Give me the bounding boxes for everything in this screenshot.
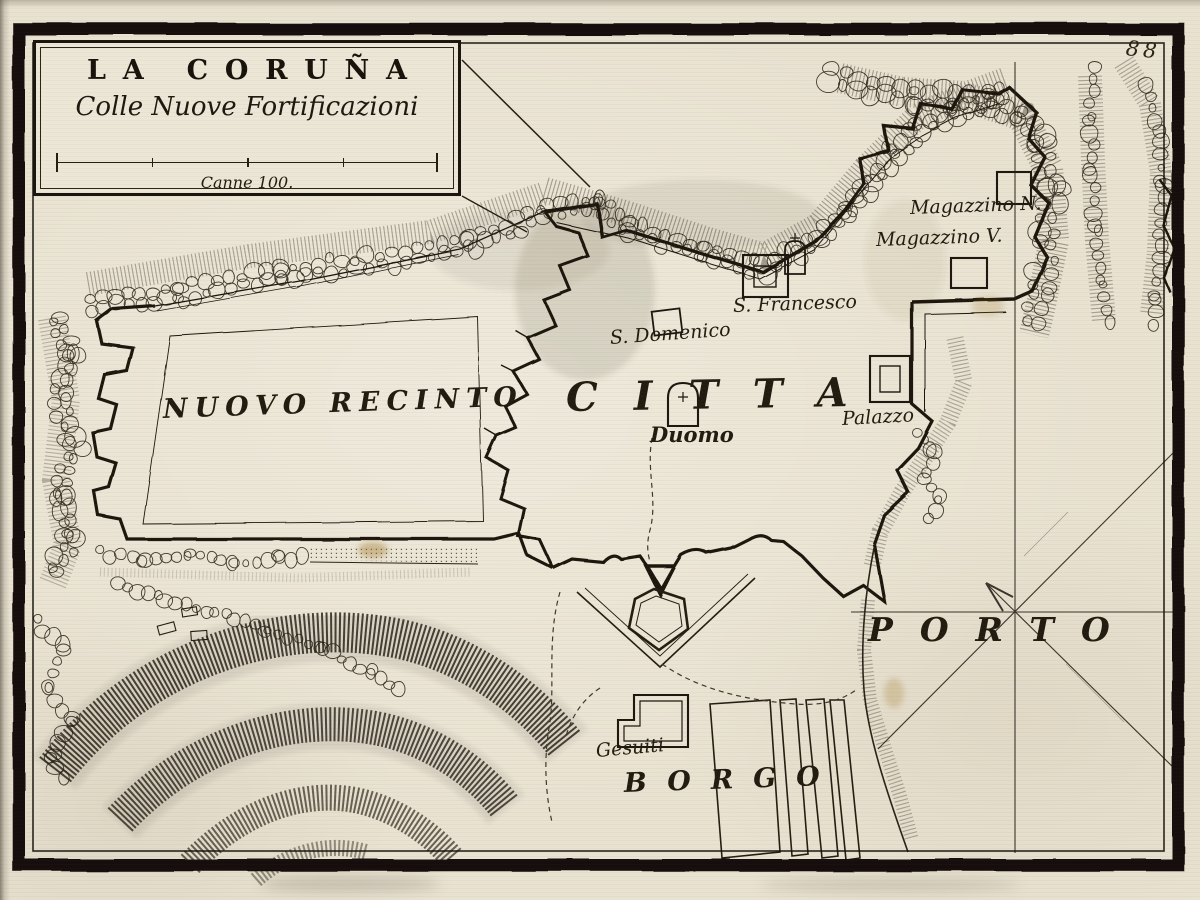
scale-tick — [343, 158, 345, 167]
beach-strip — [310, 546, 478, 564]
building-magazzino-v — [951, 258, 987, 288]
compass-ne-sw-line — [878, 447, 1179, 749]
label-porto: PORTO — [868, 610, 1137, 649]
glacis-hill — [55, 632, 566, 880]
scale-bar — [56, 151, 438, 175]
scale-tick — [247, 158, 249, 167]
porto-shoreline — [863, 548, 908, 852]
map-subtitle: Colle Nuove Fortificazioni — [36, 92, 458, 122]
photo-edge-shadow — [0, 0, 10, 900]
engraved-map-page: LA CORUÑA Colle Nuove Fortificazioni Can… — [0, 0, 1200, 900]
ravelin-inner — [636, 596, 682, 642]
map-title: LA CORUÑA — [36, 55, 458, 86]
recinto-outer-wall — [93, 306, 553, 568]
label-magazzino-v: Magazzino V. — [876, 225, 1003, 251]
label-citta: CITTA — [566, 368, 884, 421]
photo-edge-shadow — [0, 0, 1200, 8]
title-cartouche: LA CORUÑA Colle Nuove Fortificazioni Can… — [33, 40, 461, 196]
counterguard-outer — [577, 578, 755, 667]
label-s-francesco: S. Francesco — [733, 291, 858, 317]
scale-tick — [56, 153, 58, 172]
compass-rose — [851, 62, 1179, 853]
label-magazzino-n: Magazzino N. — [910, 192, 1042, 219]
ravelin-outer — [629, 589, 688, 650]
label-palazzo: Palazzo — [841, 404, 914, 430]
buildings — [618, 172, 1031, 747]
scale-label: Canne 100. — [36, 173, 458, 192]
scattered-stones — [157, 607, 207, 641]
citta-south-front — [553, 535, 884, 601]
scale-tick — [436, 153, 438, 172]
citta-hornwork-inner — [925, 312, 1006, 412]
label-duomo: Duomo — [650, 422, 734, 447]
scale-tick — [152, 158, 154, 167]
outworks — [577, 574, 755, 667]
plate-page-number: 88 — [1125, 36, 1162, 63]
